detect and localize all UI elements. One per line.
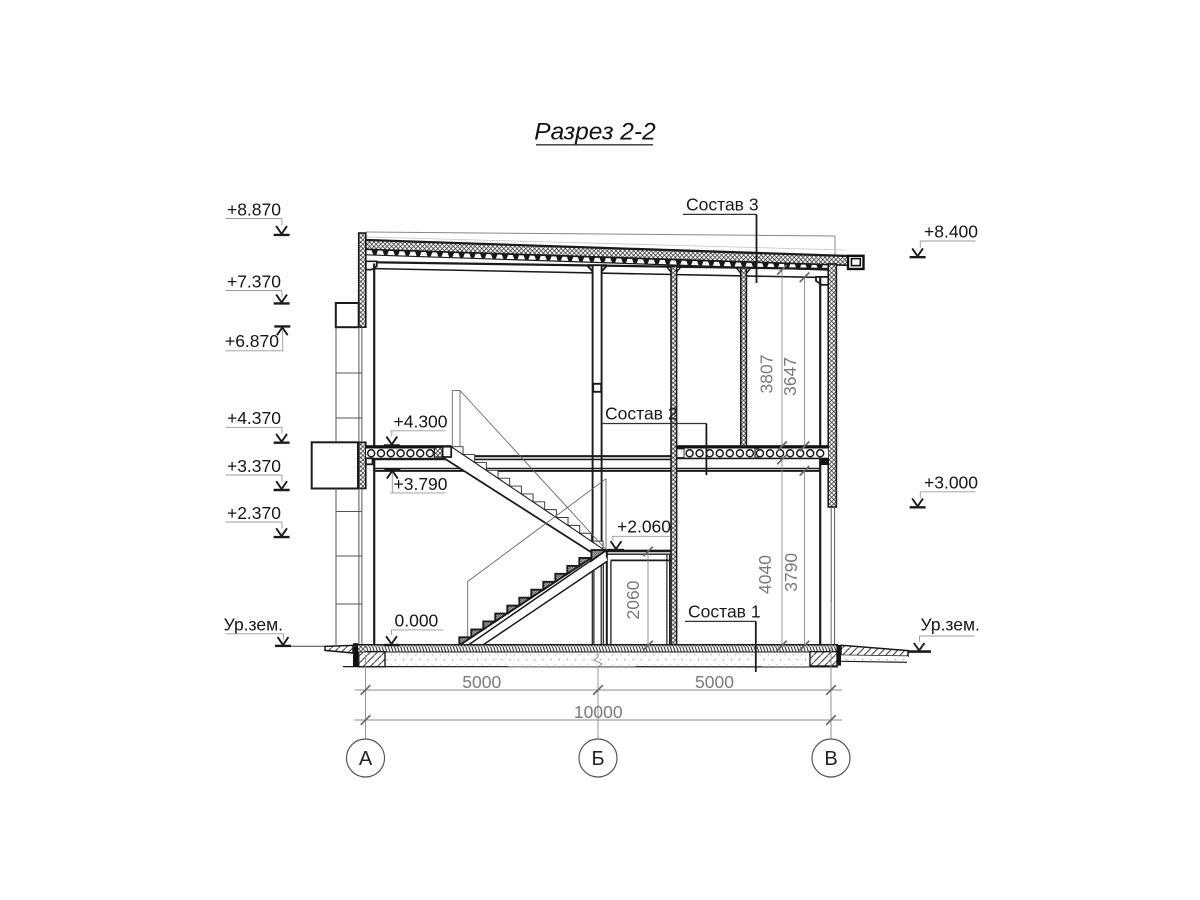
svg-text:+3.370: +3.370 — [227, 456, 281, 476]
svg-text:Состав 3: Состав 3 — [686, 195, 759, 215]
svg-text:+8.400: +8.400 — [924, 222, 978, 242]
svg-text:+7.370: +7.370 — [227, 271, 281, 291]
svg-text:3647: 3647 — [780, 357, 800, 396]
svg-text:3790: 3790 — [781, 553, 801, 592]
svg-text:А: А — [359, 748, 373, 770]
svg-text:5000: 5000 — [695, 672, 734, 692]
svg-text:+2.370: +2.370 — [227, 503, 281, 523]
svg-text:5000: 5000 — [462, 672, 501, 692]
svg-text:Состав 1: Состав 1 — [688, 602, 761, 622]
svg-text:+4.300: +4.300 — [394, 412, 448, 432]
svg-text:+3.000: +3.000 — [924, 472, 978, 492]
svg-text:+4.370: +4.370 — [227, 408, 281, 428]
svg-text:3807: 3807 — [757, 355, 777, 394]
svg-text:Разрез 2-2: Разрез 2-2 — [534, 119, 656, 146]
svg-text:+3.790: +3.790 — [394, 474, 448, 494]
svg-text:Ур.зем.: Ур.зем. — [224, 614, 283, 634]
svg-text:Ур.зем.: Ур.зем. — [921, 614, 980, 634]
svg-text:4040: 4040 — [755, 555, 775, 594]
svg-text:10000: 10000 — [574, 702, 623, 722]
svg-text:Б: Б — [591, 748, 604, 770]
svg-text:+2.060: +2.060 — [617, 517, 671, 537]
svg-text:+8.870: +8.870 — [227, 199, 281, 219]
svg-text:В: В — [824, 748, 837, 770]
svg-text:0.000: 0.000 — [395, 611, 439, 631]
svg-text:+6.870: +6.870 — [225, 331, 279, 351]
svg-text:Состав 2: Состав 2 — [605, 404, 678, 424]
svg-text:2060: 2060 — [623, 580, 643, 619]
